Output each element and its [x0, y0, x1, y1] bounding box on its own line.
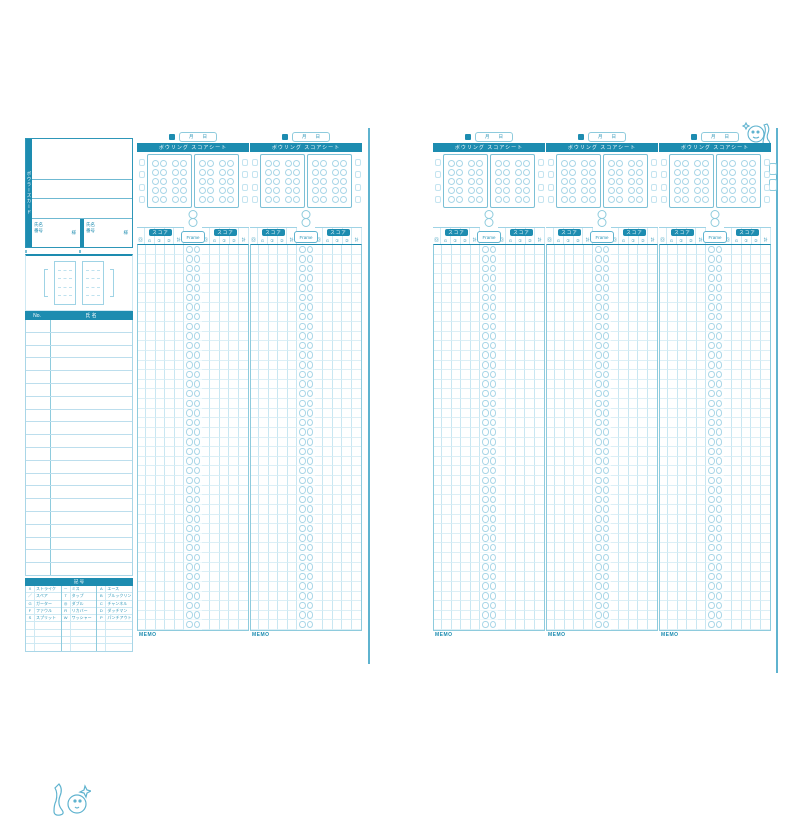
- grid-cell: [220, 543, 230, 553]
- spine-circles: [480, 303, 498, 313]
- grid-cell: [452, 389, 462, 399]
- member-suffix: 様: [124, 230, 129, 236]
- grid-cell: [742, 572, 752, 582]
- grid-cell: [165, 332, 175, 342]
- grid-cell: [352, 524, 362, 534]
- grid-cell: [352, 601, 362, 611]
- grid-right-side: [315, 303, 361, 313]
- grid-cell: [574, 611, 584, 621]
- grid-cell: [547, 409, 555, 419]
- grid-cell: [660, 255, 668, 265]
- grid-cell: [342, 351, 352, 361]
- grid-cell: [498, 389, 506, 399]
- grid-cell: [288, 543, 298, 553]
- grid-cell: [678, 380, 688, 390]
- grid-cell: [742, 486, 752, 496]
- grid-cell: [442, 380, 452, 390]
- grid-cell: [278, 389, 288, 399]
- grid-cell: [342, 611, 352, 621]
- grid-cell: [342, 428, 352, 438]
- grid-right-side: [611, 303, 657, 313]
- spine-circles: [184, 361, 202, 371]
- spine-circles: [480, 341, 498, 351]
- grid-cell: [342, 284, 352, 294]
- grid-cell: [516, 447, 526, 457]
- grid-cell: [506, 620, 516, 630]
- spine-circle: [716, 592, 723, 600]
- grid-right-side: [611, 264, 657, 274]
- grid-row: [660, 418, 770, 428]
- legend-code-cell: [62, 630, 71, 636]
- grid-cell: [333, 582, 343, 592]
- grid-right-side: [315, 312, 361, 322]
- grid-cell: [156, 293, 166, 303]
- spine-circles: [593, 515, 611, 525]
- grid-row: [251, 495, 361, 505]
- column-date-row: 月 日: [659, 131, 771, 143]
- pin-box-2: [716, 154, 761, 208]
- grid-cell: [751, 486, 761, 496]
- grid-cell: [251, 341, 259, 351]
- grid-row: [138, 303, 248, 313]
- grid-cell: [611, 524, 619, 534]
- grid-cell: [229, 389, 239, 399]
- grid-cell: [146, 293, 156, 303]
- spine-circles: [593, 255, 611, 265]
- spine-circle: [595, 602, 602, 610]
- spine-circle: [186, 428, 193, 436]
- grid-cell: [146, 351, 156, 361]
- grid-cell: [565, 476, 575, 486]
- grid-cell: [452, 447, 462, 457]
- grid-cell: [648, 601, 658, 611]
- spine-circle: [307, 342, 314, 350]
- grid-row: [251, 312, 361, 322]
- grid-cell: [352, 466, 362, 476]
- grid-cell: [732, 438, 742, 448]
- spine-circles: [706, 322, 724, 332]
- grid-left-side: [138, 284, 184, 294]
- grid-left-side: [251, 447, 297, 457]
- pin-margin-cell: [435, 184, 441, 191]
- grid-cell: [229, 486, 239, 496]
- grid-cell: [629, 553, 639, 563]
- spine-circle: [708, 380, 715, 388]
- grid-cell: [732, 592, 742, 602]
- grid-cell: [732, 409, 742, 419]
- grid-cell: [516, 255, 526, 265]
- grid-right-side: [498, 293, 544, 303]
- grid-cell: [611, 303, 619, 313]
- grid-cell: [434, 524, 442, 534]
- grid-cell: [535, 255, 545, 265]
- spine-circles: [593, 620, 611, 630]
- grid-cell: [648, 399, 658, 409]
- grid-cell: [434, 332, 442, 342]
- grid-cell: [547, 399, 555, 409]
- grid-cell: [761, 524, 771, 534]
- grid-right-side: [724, 466, 770, 476]
- grid-left-side: [660, 495, 706, 505]
- column-header-area: スコア 回G①②計 Frame スコア 回G①②計: [433, 210, 545, 244]
- grid-cell: [315, 245, 323, 255]
- grid-left-side: [251, 361, 297, 371]
- spine-circle: [490, 602, 497, 610]
- grid-row: [660, 438, 770, 448]
- grid-cell: [333, 457, 343, 467]
- grid-cell: [555, 534, 565, 544]
- spine-circle: [186, 477, 193, 485]
- grid-cell: [547, 582, 555, 592]
- pin-margin-cell: [651, 184, 657, 191]
- spine-circle: [490, 303, 497, 311]
- grid-right-side: [315, 495, 361, 505]
- grid-cell: [452, 620, 462, 630]
- grid-cell: [751, 322, 761, 332]
- grid-cell: [452, 534, 462, 544]
- grid-cell: [323, 601, 333, 611]
- spine-circle: [299, 342, 306, 350]
- pin-margin-cell: [764, 184, 770, 191]
- grid-cell: [259, 361, 269, 371]
- grid-cell: [442, 543, 452, 553]
- grid-cell: [516, 380, 526, 390]
- spine-circles: [297, 543, 315, 553]
- grid-right-side: [611, 322, 657, 332]
- grid-cell: [574, 447, 584, 457]
- spine-circle: [716, 515, 723, 523]
- grid-cell: [442, 274, 452, 284]
- grid-cell: [342, 534, 352, 544]
- legend-code-cell: [62, 637, 71, 643]
- grid-cell: [506, 409, 516, 419]
- spine-circles: [706, 495, 724, 505]
- grid-cell: [269, 553, 279, 563]
- header-sub-cell: 回: [137, 228, 145, 244]
- grid-cell: [648, 341, 658, 351]
- pin-circle: [199, 187, 206, 194]
- grid-cell: [668, 543, 678, 553]
- roster-row: [26, 371, 132, 384]
- grid-right-side: [724, 447, 770, 457]
- legend-code-cell: S: [26, 615, 35, 621]
- grid-left-side: [660, 438, 706, 448]
- grid-cell: [202, 370, 210, 380]
- spine-circle: [194, 467, 201, 475]
- pin-margin-cell: [651, 159, 657, 166]
- spine-circle: [194, 534, 201, 542]
- spine-circle: [708, 419, 715, 427]
- legend-row: [97, 630, 132, 637]
- spine-circle: [186, 525, 193, 533]
- grid-cell: [239, 457, 249, 467]
- spine-circles: [480, 293, 498, 303]
- spine-circle: [307, 563, 314, 571]
- grid-cell: [434, 476, 442, 486]
- grid-right-side: [611, 505, 657, 515]
- grid-cell: [697, 534, 707, 544]
- grid-left-side: [547, 409, 593, 419]
- spine-circle: [603, 361, 610, 369]
- grid-row: [138, 592, 248, 602]
- pin-cluster: [265, 159, 281, 204]
- roster-row: [26, 486, 132, 499]
- pin-margin-cell: [764, 196, 770, 203]
- grid-cell: [333, 515, 343, 525]
- grid-cell: [251, 515, 259, 525]
- column-date-row: 月 日: [433, 131, 545, 143]
- grid-cell: [687, 505, 697, 515]
- legend-row: Sスプリット: [26, 615, 61, 622]
- grid-cell: [461, 601, 471, 611]
- column-title-bar: ボウリング スコアシート: [137, 143, 249, 152]
- spine-circle: [482, 246, 489, 254]
- grid-cell: [584, 466, 594, 476]
- grid-left-side: [434, 399, 480, 409]
- grid-row: [434, 447, 544, 457]
- grid-cell: [584, 399, 594, 409]
- spine-circle: [603, 390, 610, 398]
- grid-cell: [498, 255, 506, 265]
- grid-right-side: [724, 274, 770, 284]
- grid-cell: [648, 486, 658, 496]
- grid-cell: [278, 505, 288, 515]
- grid-cell: [434, 418, 442, 428]
- grid-left-side: [547, 399, 593, 409]
- grid-cell: [498, 505, 506, 515]
- grid-cell: [516, 582, 526, 592]
- legend-row: －ミス: [62, 586, 97, 593]
- spine-circle: [299, 419, 306, 427]
- spine-circles: [297, 476, 315, 486]
- spine-circle: [307, 265, 314, 273]
- grid-cell: [611, 428, 619, 438]
- grid-cell: [547, 428, 555, 438]
- spine-circle: [490, 554, 497, 562]
- grid-cell: [678, 524, 688, 534]
- grid-cell: [352, 515, 362, 525]
- grid-cell: [278, 515, 288, 525]
- pin-circle: [581, 187, 588, 194]
- grid-cell: [697, 255, 707, 265]
- grid-cell: [239, 495, 249, 505]
- grid-cell: [498, 341, 506, 351]
- grid-row: [434, 322, 544, 332]
- spine-circles: [706, 332, 724, 342]
- grid-cell: [220, 370, 230, 380]
- grid-cell: [323, 274, 333, 284]
- grid-cell: [220, 495, 230, 505]
- grid-cell: [442, 341, 452, 351]
- spine-circle: [482, 303, 489, 311]
- grid-right-side: [724, 380, 770, 390]
- grid-cell: [732, 601, 742, 611]
- header-center: Frame: [184, 227, 202, 244]
- grid-left-side: [547, 543, 593, 553]
- grid-cell: [648, 592, 658, 602]
- pin-circle: [448, 160, 455, 167]
- spine-circle: [716, 563, 723, 571]
- legend-row: [26, 622, 61, 629]
- grid-left-side: [251, 515, 297, 525]
- legend-row: Rリカバー: [62, 608, 97, 615]
- spine-circles: [706, 534, 724, 544]
- grid-cell: [697, 505, 707, 515]
- pin-circle: [172, 196, 179, 203]
- spine-circles: [593, 274, 611, 284]
- grid-left-side: [251, 284, 297, 294]
- spine-circle: [482, 515, 489, 523]
- spine-circle: [708, 323, 715, 331]
- grid-cell: [535, 611, 545, 621]
- grid-cell: [461, 389, 471, 399]
- grid-cell: [442, 322, 452, 332]
- grid-cell: [648, 563, 658, 573]
- spine-circle: [716, 573, 723, 581]
- grid-cell: [498, 332, 506, 342]
- grid-cell: [156, 601, 166, 611]
- grid-cell: [452, 524, 462, 534]
- grid-row: [547, 245, 657, 255]
- grid-cell: [648, 418, 658, 428]
- grid-cell: [165, 428, 175, 438]
- spine-circle: [194, 380, 201, 388]
- grid-row: [547, 534, 657, 544]
- grid-cell: [697, 495, 707, 505]
- grid-cell: [434, 534, 442, 544]
- grid-row: [251, 611, 361, 621]
- grid-left-side: [547, 466, 593, 476]
- grid-cell: [697, 274, 707, 284]
- grid-cell: [251, 293, 259, 303]
- pin-circle: [569, 169, 576, 176]
- grid-right-side: [202, 428, 248, 438]
- spine-circles: [706, 303, 724, 313]
- grid-cell: [516, 361, 526, 371]
- spine-circles: [480, 563, 498, 573]
- grid-cell: [516, 312, 526, 322]
- grid-cell: [138, 553, 146, 563]
- grid-cell: [611, 332, 619, 342]
- date-field: 月 日: [292, 132, 330, 142]
- grid-cell: [156, 620, 166, 630]
- grid-cell: [506, 515, 516, 525]
- grid-cell: [697, 370, 707, 380]
- spine-circle: [490, 409, 497, 417]
- grid-left-side: [660, 466, 706, 476]
- grid-row: [251, 601, 361, 611]
- grid-cell: [251, 389, 259, 399]
- grid-cell: [315, 486, 323, 496]
- grid-cell: [202, 582, 210, 592]
- spine-circle: [716, 246, 723, 254]
- spine-circles: [480, 284, 498, 294]
- grid-cell: [288, 438, 298, 448]
- spine-circle: [708, 371, 715, 379]
- grid-right-side: [611, 361, 657, 371]
- grid-cell: [202, 322, 210, 332]
- grid-left-side: [434, 274, 480, 284]
- spine-circle: [708, 573, 715, 581]
- spine-circles: [184, 447, 202, 457]
- pin-circle: [561, 196, 568, 203]
- grid-cell: [175, 293, 185, 303]
- spine-circles: [706, 457, 724, 467]
- grid-cell: [506, 611, 516, 621]
- grid-row: [251, 409, 361, 419]
- grid-cell: [506, 486, 516, 496]
- grid-cell: [498, 495, 506, 505]
- grid-cell: [220, 620, 230, 630]
- grid-cell: [742, 370, 752, 380]
- roster-row: [26, 448, 132, 461]
- grid-right-side: [315, 457, 361, 467]
- grid-cell: [732, 361, 742, 371]
- pin-circle: [616, 169, 623, 176]
- spine-circles: [297, 418, 315, 428]
- spine-circle: [708, 294, 715, 302]
- grid-row: [251, 293, 361, 303]
- grid-cell: [742, 255, 752, 265]
- spine-circle: [490, 534, 497, 542]
- pin-circle: [503, 160, 510, 167]
- grid-cell: [461, 370, 471, 380]
- grid-left-side: [434, 563, 480, 573]
- grid-cell: [229, 341, 239, 351]
- grid-row: [434, 293, 544, 303]
- grid-cell: [175, 466, 185, 476]
- grid-cell: [288, 418, 298, 428]
- grid-cell: [156, 255, 166, 265]
- grid-cell: [742, 563, 752, 573]
- grid-cell: [648, 264, 658, 274]
- pin-cluster: [448, 159, 464, 204]
- grid-cell: [668, 409, 678, 419]
- grid-cell: [584, 274, 594, 284]
- grid-cell: [278, 592, 288, 602]
- grid-cell: [660, 620, 668, 630]
- grid-right-side: [202, 245, 248, 255]
- grid-row: [660, 447, 770, 457]
- grid-right-side: [202, 543, 248, 553]
- grid-cell: [259, 476, 269, 486]
- grid-cell: [442, 418, 452, 428]
- pin-circle: [468, 196, 475, 203]
- grid-row: [138, 505, 248, 515]
- grid-cell: [156, 341, 166, 351]
- grid-cell: [165, 476, 175, 486]
- grid-left-side: [138, 380, 184, 390]
- pin-cluster: [514, 159, 530, 204]
- grid-cell: [547, 303, 555, 313]
- grid-cell: [138, 524, 146, 534]
- spine-circles: [480, 418, 498, 428]
- grid-left-side: [434, 341, 480, 351]
- grid-cell: [611, 409, 619, 419]
- spine-circle: [482, 255, 489, 263]
- grid-cell: [202, 341, 210, 351]
- grid-cell: [239, 611, 249, 621]
- pin-circle: [285, 160, 292, 167]
- grid-cell: [202, 351, 210, 361]
- grid-right-side: [724, 515, 770, 525]
- spine-circle: [716, 255, 723, 263]
- grid-cell: [761, 428, 771, 438]
- spine-circles: [480, 274, 498, 284]
- spine-circle: [490, 265, 497, 273]
- grid-cell: [516, 457, 526, 467]
- grid-row: [660, 553, 770, 563]
